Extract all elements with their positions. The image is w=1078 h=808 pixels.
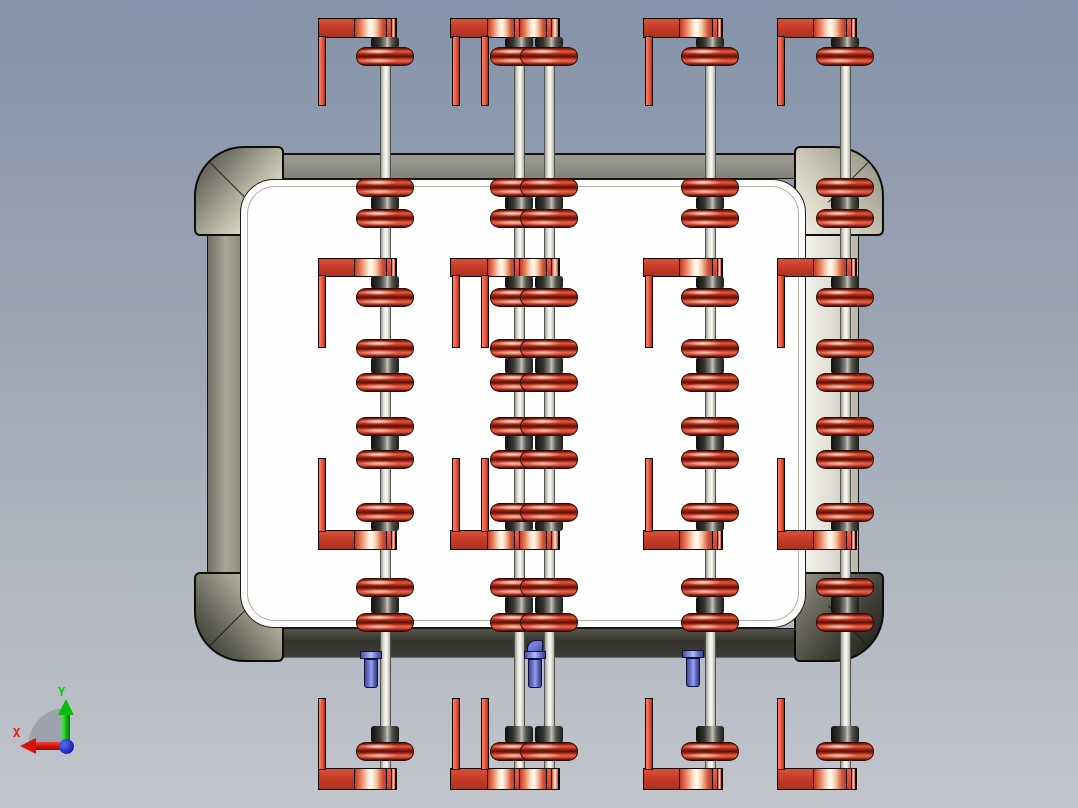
- bracket-leg[interactable]: [481, 275, 489, 348]
- pulley-sheave[interactable]: [356, 613, 414, 632]
- bracket-leg[interactable]: [452, 36, 460, 106]
- bracket-bar-segment: [488, 259, 515, 276]
- pulley-sheave[interactable]: [816, 578, 874, 597]
- pulley-sheave[interactable]: [520, 339, 578, 358]
- hub-spacer[interactable]: [371, 596, 399, 614]
- pulley-sheave[interactable]: [681, 339, 739, 358]
- pulley-sheave[interactable]: [681, 613, 739, 632]
- bracket-bar-segment: [814, 19, 846, 37]
- hub-spacer[interactable]: [371, 357, 399, 374]
- bracket-leg[interactable]: [318, 36, 326, 106]
- bracket-leg[interactable]: [645, 36, 653, 106]
- bracket-bar-segment: [488, 531, 515, 549]
- pulley-sheave[interactable]: [356, 503, 414, 522]
- bracket-bar[interactable]: [643, 768, 723, 790]
- bracket-bar[interactable]: [318, 18, 397, 38]
- bracket-bar-segment: [319, 259, 355, 276]
- bracket-bar[interactable]: [318, 258, 397, 277]
- bracket-bar-segment: [451, 19, 488, 37]
- shaft-rod[interactable]: [380, 40, 391, 786]
- bracket-leg[interactable]: [452, 698, 460, 770]
- y-axis-label: Y: [58, 686, 65, 698]
- bracket-bar-segment: [319, 19, 355, 37]
- bracket-bar-segment: [319, 769, 355, 789]
- bracket-leg[interactable]: [452, 458, 460, 532]
- hub-spacer[interactable]: [831, 357, 859, 374]
- hub-spacer[interactable]: [535, 434, 563, 451]
- pulley-sheave[interactable]: [681, 742, 739, 761]
- pulley-sheave[interactable]: [681, 503, 739, 522]
- bracket-bar-segment: [552, 769, 559, 789]
- pulley-sheave[interactable]: [356, 178, 414, 197]
- bracket-bar-segment: [451, 259, 488, 276]
- bracket-bar-segment: [355, 531, 387, 549]
- pulley-sheave[interactable]: [520, 373, 578, 392]
- bracket-bar[interactable]: [318, 530, 397, 550]
- bracket-leg[interactable]: [777, 275, 785, 348]
- pulley-sheave[interactable]: [520, 578, 578, 597]
- pulley-sheave[interactable]: [356, 209, 414, 228]
- pulley-sheave[interactable]: [356, 450, 414, 469]
- z-axis-dot-icon: [59, 739, 74, 754]
- bracket-leg[interactable]: [481, 458, 489, 532]
- hub-spacer[interactable]: [696, 596, 724, 614]
- pulley-sheave[interactable]: [681, 373, 739, 392]
- bracket-bar[interactable]: [643, 258, 723, 277]
- pulley-sheave[interactable]: [356, 578, 414, 597]
- pulley-sheave[interactable]: [816, 288, 874, 307]
- hub-spacer[interactable]: [505, 196, 533, 210]
- bracket-leg[interactable]: [318, 458, 326, 532]
- bracket-bar-segment: [644, 531, 680, 549]
- bracket-bar-segment: [552, 531, 559, 549]
- bushing-body[interactable]: [686, 658, 700, 687]
- bracket-bar-segment: [778, 19, 814, 37]
- bushing-flange[interactable]: [360, 651, 382, 659]
- bracket-bar-segment: [852, 259, 856, 276]
- bracket-leg[interactable]: [777, 458, 785, 532]
- pulley-sheave[interactable]: [681, 288, 739, 307]
- bracket-bar-segment: [680, 19, 712, 37]
- bracket-bar-segment: [778, 259, 814, 276]
- bracket-bar-segment: [644, 259, 680, 276]
- x-axis-label: X: [13, 727, 20, 739]
- shaft-rod[interactable]: [705, 40, 716, 786]
- hub-spacer[interactable]: [535, 596, 563, 614]
- y-axis-arrowhead-icon: [58, 699, 74, 715]
- cad-viewport[interactable]: X Y: [0, 0, 1078, 808]
- pulley-sheave[interactable]: [356, 417, 414, 436]
- bracket-bar-segment: [355, 259, 387, 276]
- bracket-leg[interactable]: [777, 698, 785, 770]
- bracket-bar-segment: [814, 769, 846, 789]
- bracket-bar[interactable]: [318, 768, 397, 790]
- hub-spacer[interactable]: [371, 196, 399, 210]
- x-axis-arrowhead-icon: [20, 738, 36, 754]
- bracket-bar-segment: [451, 531, 488, 549]
- pulley-sheave[interactable]: [520, 178, 578, 197]
- bracket-bar[interactable]: [777, 258, 857, 277]
- bracket-bar-segment: [680, 259, 712, 276]
- bracket-leg[interactable]: [481, 698, 489, 770]
- hub-spacer[interactable]: [371, 434, 399, 451]
- pulley-sheave[interactable]: [681, 417, 739, 436]
- shaft-rod[interactable]: [544, 40, 555, 786]
- hub-spacer[interactable]: [831, 596, 859, 614]
- pulley-sheave[interactable]: [520, 288, 578, 307]
- pulley-sheave[interactable]: [520, 417, 578, 436]
- pulley-sheave[interactable]: [356, 339, 414, 358]
- hub-spacer[interactable]: [535, 357, 563, 374]
- pulley-sheave[interactable]: [520, 209, 578, 228]
- pulley-sheave[interactable]: [681, 450, 739, 469]
- bracket-bar-segment: [488, 769, 515, 789]
- hub-spacer[interactable]: [696, 434, 724, 451]
- bracket-bar[interactable]: [643, 18, 723, 38]
- hub-spacer[interactable]: [535, 726, 563, 743]
- pulley-sheave[interactable]: [816, 417, 874, 436]
- pulley-sheave[interactable]: [681, 47, 739, 66]
- bracket-bar-segment: [520, 769, 547, 789]
- pulley-sheave[interactable]: [681, 178, 739, 197]
- hub-spacer[interactable]: [371, 726, 399, 743]
- shaft-rod[interactable]: [840, 40, 851, 786]
- bracket-bar[interactable]: [777, 768, 857, 790]
- bracket-bar-segment: [718, 259, 722, 276]
- bracket-bar-segment: [552, 259, 559, 276]
- pulley-sheave[interactable]: [816, 47, 874, 66]
- bracket-bar-segment: [520, 259, 547, 276]
- pulley-sheave[interactable]: [356, 373, 414, 392]
- bracket-bar-segment: [852, 769, 856, 789]
- hub-spacer[interactable]: [831, 434, 859, 451]
- hub-spacer[interactable]: [831, 726, 859, 743]
- pulley-sheave[interactable]: [520, 613, 578, 632]
- bracket-bar-segment: [319, 531, 355, 549]
- bracket-leg[interactable]: [645, 458, 653, 532]
- pulley-sheave[interactable]: [520, 450, 578, 469]
- bracket-bar[interactable]: [450, 530, 560, 550]
- hub-spacer[interactable]: [505, 434, 533, 451]
- bracket-bar-segment: [392, 531, 396, 549]
- hub-spacer[interactable]: [696, 726, 724, 743]
- pulley-sheave[interactable]: [816, 450, 874, 469]
- model-layer: [0, 0, 1078, 808]
- pulley-sheave[interactable]: [816, 613, 874, 632]
- pulley-sheave[interactable]: [520, 742, 578, 761]
- orientation-triad: X Y: [10, 685, 130, 785]
- pulley-sheave[interactable]: [816, 742, 874, 761]
- bracket-bar[interactable]: [450, 18, 560, 38]
- pulley-sheave[interactable]: [816, 209, 874, 228]
- bracket-leg[interactable]: [318, 275, 326, 348]
- pulley-sheave[interactable]: [816, 178, 874, 197]
- bracket-bar-segment: [778, 769, 814, 789]
- bushing-body[interactable]: [364, 659, 378, 688]
- pulley-sheave[interactable]: [356, 47, 414, 66]
- bracket-bar-segment: [718, 19, 722, 37]
- bracket-bar-segment: [355, 769, 387, 789]
- bracket-bar-segment: [718, 769, 722, 789]
- bracket-bar-segment: [644, 19, 680, 37]
- bracket-leg[interactable]: [645, 698, 653, 770]
- bracket-bar-segment: [680, 769, 712, 789]
- bracket-bar[interactable]: [450, 768, 560, 790]
- hub-spacer[interactable]: [696, 196, 724, 210]
- pulley-sheave[interactable]: [816, 339, 874, 358]
- bracket-bar-segment: [680, 531, 712, 549]
- bracket-bar-segment: [520, 19, 547, 37]
- bracket-bar-segment: [488, 19, 515, 37]
- pulley-sheave[interactable]: [520, 47, 578, 66]
- bracket-bar-segment: [451, 769, 488, 789]
- pulley-sheave[interactable]: [681, 209, 739, 228]
- hub-spacer[interactable]: [505, 726, 533, 743]
- hub-spacer[interactable]: [831, 196, 859, 210]
- bracket-bar[interactable]: [777, 530, 857, 550]
- pulley-sheave[interactable]: [356, 288, 414, 307]
- hub-spacer[interactable]: [505, 596, 533, 614]
- pulley-sheave[interactable]: [816, 373, 874, 392]
- bracket-bar-segment: [355, 19, 387, 37]
- hub-spacer[interactable]: [535, 196, 563, 210]
- bracket-leg[interactable]: [452, 275, 460, 348]
- bracket-bar-segment: [718, 531, 722, 549]
- bracket-bar-segment: [852, 531, 856, 549]
- bracket-bar-segment: [814, 259, 846, 276]
- shaft-rod[interactable]: [514, 40, 525, 786]
- bracket-bar-segment: [852, 19, 856, 37]
- bracket-bar-segment: [814, 531, 846, 549]
- bracket-bar-segment: [392, 259, 396, 276]
- bushing-body[interactable]: [528, 659, 542, 688]
- bracket-bar[interactable]: [450, 258, 560, 277]
- bracket-leg[interactable]: [481, 36, 489, 106]
- bushing-flange[interactable]: [682, 650, 704, 658]
- pulley-sheave[interactable]: [816, 503, 874, 522]
- bracket-bar-segment: [392, 769, 396, 789]
- bushing-flange[interactable]: [524, 651, 546, 659]
- bracket-bar[interactable]: [643, 530, 723, 550]
- bracket-leg[interactable]: [645, 275, 653, 348]
- bracket-bar-segment: [392, 19, 396, 37]
- bracket-leg[interactable]: [318, 698, 326, 770]
- pulley-sheave[interactable]: [681, 578, 739, 597]
- bracket-bar-segment: [778, 531, 814, 549]
- bracket-bar-segment: [520, 531, 547, 549]
- hub-spacer[interactable]: [505, 357, 533, 374]
- bracket-bar[interactable]: [777, 18, 857, 38]
- bracket-leg[interactable]: [777, 36, 785, 106]
- bracket-bar-segment: [644, 769, 680, 789]
- bracket-bar-segment: [552, 19, 559, 37]
- pulley-sheave[interactable]: [356, 742, 414, 761]
- hub-spacer[interactable]: [696, 357, 724, 374]
- pulley-sheave[interactable]: [520, 503, 578, 522]
